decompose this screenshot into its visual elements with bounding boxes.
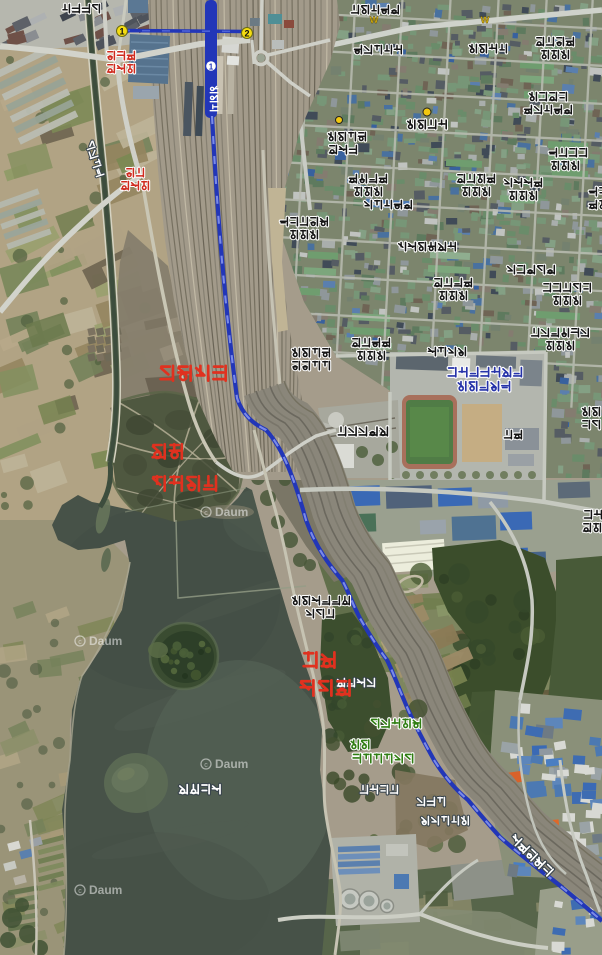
svg-text:Daum: Daum	[215, 505, 248, 519]
svg-text:2: 2	[244, 29, 249, 39]
svg-text:c: c	[78, 888, 82, 895]
svg-text:W: W	[370, 15, 379, 25]
svg-text:1: 1	[119, 27, 124, 37]
svg-text:Daum: Daum	[215, 757, 248, 771]
svg-text:Daum: Daum	[89, 634, 122, 648]
svg-text:W: W	[481, 15, 490, 25]
svg-text:c: c	[204, 510, 208, 517]
svg-text:c: c	[204, 762, 208, 769]
svg-text:1: 1	[209, 62, 214, 71]
svg-text:c: c	[78, 639, 82, 646]
svg-text:Daum: Daum	[89, 883, 122, 897]
